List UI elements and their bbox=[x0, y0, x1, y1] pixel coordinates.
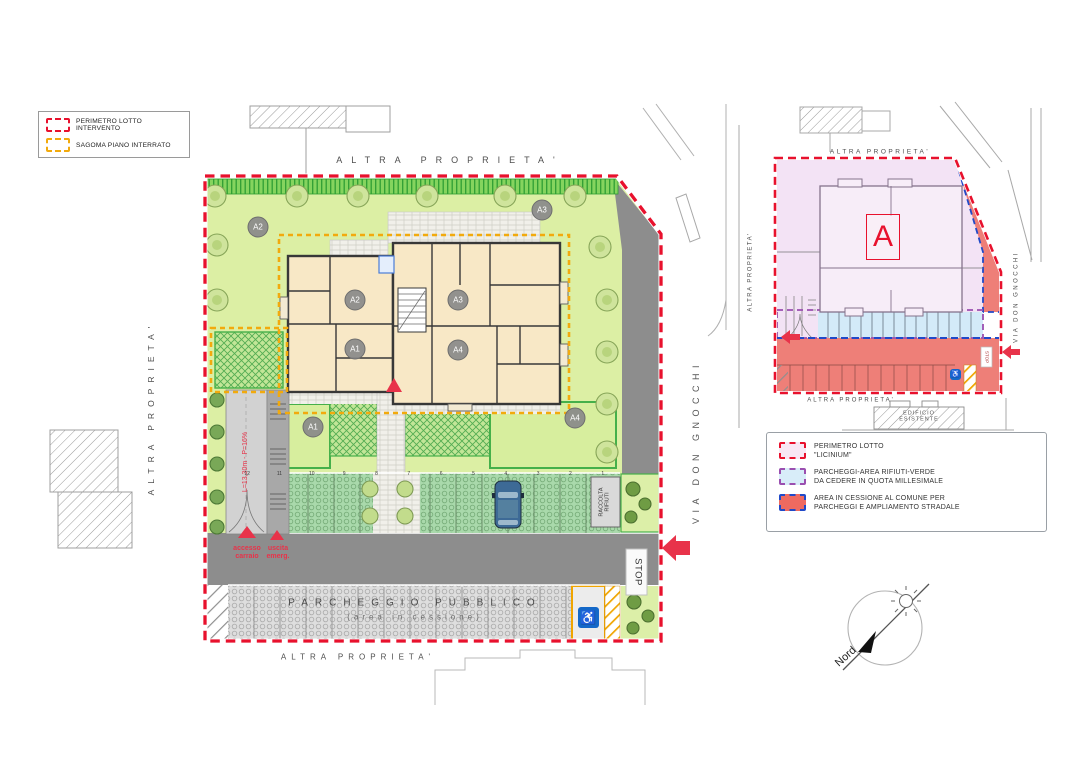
perimeter-swatch-icon bbox=[46, 118, 70, 132]
legend-item-perimeter: PERIMETRO LOTTO INTERVENTO bbox=[46, 118, 184, 132]
parking-space-number: 8 bbox=[360, 471, 392, 477]
detail-stop-sign-text: STOP bbox=[984, 351, 989, 363]
legend-line: DA CEDERE IN QUOTA MILLESIMALE bbox=[814, 478, 943, 485]
emergency-exit-label: uscita emerg. bbox=[267, 545, 290, 561]
detail-street-name: VIA DON GNOCCHI bbox=[1014, 251, 1021, 343]
building-unit-a1: A1 bbox=[345, 339, 366, 360]
garden-unit-a3: A3 bbox=[532, 200, 553, 221]
residents-parking bbox=[230, 473, 659, 533]
public-parking-subtitle: (area in cessione) bbox=[347, 612, 483, 621]
basement-swatch-icon bbox=[46, 138, 70, 152]
parking-space-number: 4 bbox=[490, 471, 522, 477]
legend-item-lotto-licinium: PERIMETRO LOTTO "LICINIUM" bbox=[779, 442, 1038, 460]
north-compass bbox=[843, 584, 929, 670]
garden-unit-a4: A4 bbox=[565, 408, 586, 429]
lotto-licinium-swatch-icon bbox=[779, 442, 806, 459]
parked-car bbox=[492, 481, 524, 528]
parking-space-number: 1 bbox=[587, 471, 619, 477]
altra-proprieta-top: ALTRA PROPRIETA' bbox=[336, 155, 563, 165]
legend-line: PARCHEGGI-AREA RIFIUTI-VERDE bbox=[814, 469, 935, 476]
legend-label: PERIMETRO LOTTO INTERVENTO bbox=[76, 118, 184, 132]
parking-space-number: 9 bbox=[328, 471, 360, 477]
garden-unit-a2: A2 bbox=[248, 217, 269, 238]
detail-altra-proprieta-bottom: ALTRA PROPRIETA' bbox=[807, 398, 895, 405]
detail-building-label-a: A bbox=[866, 214, 900, 260]
ramp-dimension-label: L=13,30m - P=16% bbox=[242, 432, 250, 492]
parking-space-number: 10 bbox=[296, 471, 328, 477]
driveway-access-label: accesso carraio bbox=[233, 545, 261, 561]
legend-line: PARCHEGGI E AMPLIAMENTO STRADALE bbox=[814, 504, 960, 511]
main-building bbox=[280, 243, 568, 411]
legend-item-basement: SAGOMA PIANO INTERRATO bbox=[46, 138, 184, 152]
legend-box-detail: PERIMETRO LOTTO "LICINIUM" PARCHEGGI-ARE… bbox=[766, 432, 1047, 532]
wheelchair-icon-detail: ♿ bbox=[950, 369, 961, 380]
building-unit-a3: A3 bbox=[448, 290, 469, 311]
legend-line: "LICINIUM" bbox=[814, 452, 852, 459]
detail-altra-proprieta-top: ALTRA PROPRIETA' bbox=[830, 148, 930, 155]
legend-box-main: PERIMETRO LOTTO INTERVENTO SAGOMA PIANO … bbox=[38, 111, 190, 158]
detail-altra-proprieta-left: ALTRA PROPRIETA' bbox=[748, 232, 755, 312]
area-cessione-swatch-icon bbox=[779, 494, 806, 511]
legend-item-parcheggi-millesimale: PARCHEGGI-AREA RIFIUTI-VERDE DA CEDERE I… bbox=[779, 468, 1038, 486]
sun-icon bbox=[891, 586, 921, 616]
parking-space-number: 7 bbox=[393, 471, 425, 477]
legend-line: AREA IN CESSIONE AL COMUNE PER bbox=[814, 495, 945, 502]
altra-proprieta-bottom: ALTRA PROPRIETA' bbox=[281, 652, 435, 661]
building-unit-a2: A2 bbox=[345, 290, 366, 311]
building-unit-a4: A4 bbox=[448, 340, 469, 361]
legend-label: SAGOMA PIANO INTERRATO bbox=[76, 142, 171, 149]
parking-space-number: 5 bbox=[457, 471, 489, 477]
parking-space-number: 6 bbox=[425, 471, 457, 477]
parking-space-number: 2 bbox=[554, 471, 586, 477]
altra-proprieta-left: ALTRA PROPRIETA' bbox=[147, 321, 157, 496]
street-name-via-don-gnocchi: VIA DON GNOCCHI bbox=[691, 360, 701, 524]
legend-item-area-cessione: AREA IN CESSIONE AL COMUNE PER PARCHEGGI… bbox=[779, 494, 1038, 512]
stop-sign-text: STOP bbox=[631, 558, 642, 586]
parking-space-number: 12 bbox=[231, 471, 263, 477]
legend-line: PERIMETRO LOTTO bbox=[814, 443, 884, 450]
parking-space-numbers: 121110987654321 bbox=[231, 471, 619, 477]
existing-building-label: EDIFICIO ESISTENTE bbox=[899, 411, 939, 424]
garden-unit-a1: A1 bbox=[303, 417, 324, 438]
parking-space-number: 11 bbox=[263, 471, 295, 477]
public-parking-title: PARCHEGGIO PUBBLICO bbox=[288, 597, 541, 609]
parcheggi-millesimale-swatch-icon bbox=[779, 468, 806, 485]
site-plan-page: PERIMETRO LOTTO INTERVENTO SAGOMA PIANO … bbox=[0, 0, 1076, 780]
parking-space-number: 3 bbox=[522, 471, 554, 477]
wheelchair-icon: ♿ bbox=[578, 607, 599, 628]
waste-collection-label: RACCOLTA RIFIUTI bbox=[599, 487, 612, 516]
